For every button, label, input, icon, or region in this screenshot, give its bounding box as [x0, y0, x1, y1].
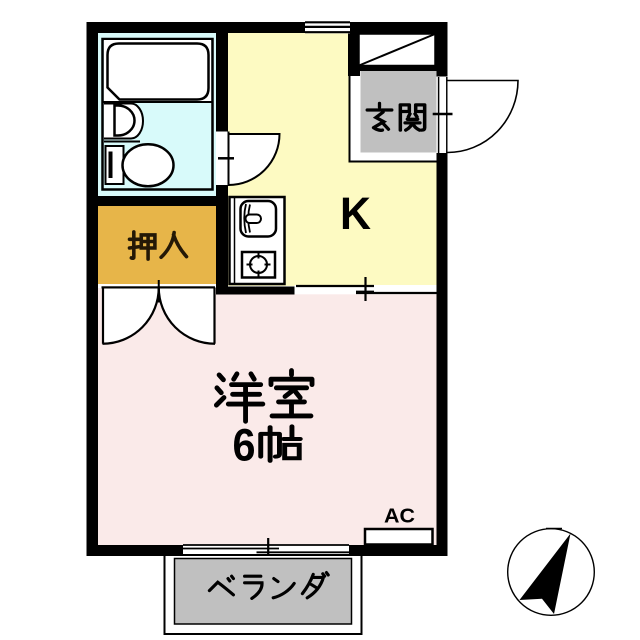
svg-text:6: 6	[233, 420, 256, 471]
svg-text:AC: AC	[384, 506, 415, 528]
svg-text:K: K	[340, 188, 371, 239]
